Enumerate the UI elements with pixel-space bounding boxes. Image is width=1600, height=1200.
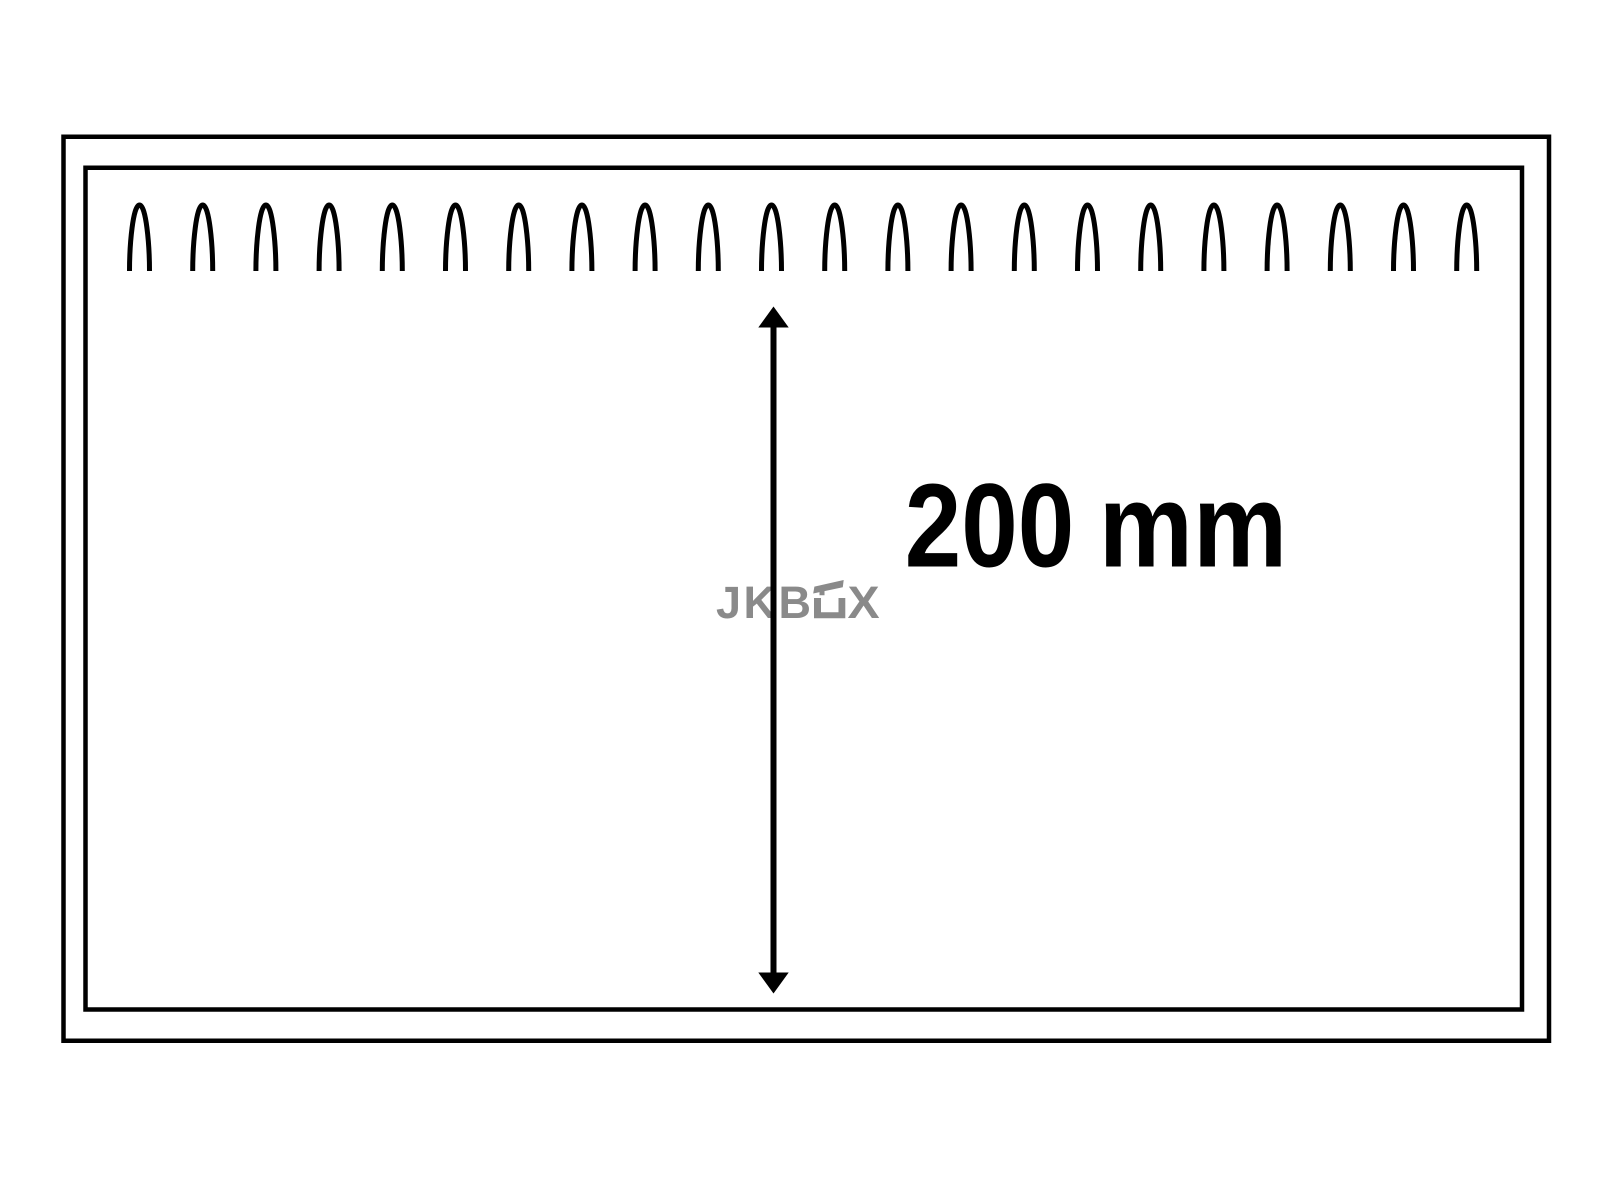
svg-text:X: X (848, 577, 880, 627)
svg-text:JKB: JKB (716, 577, 814, 628)
svg-text:mm: mm (1099, 459, 1287, 592)
svg-text:200: 200 (905, 460, 1075, 592)
